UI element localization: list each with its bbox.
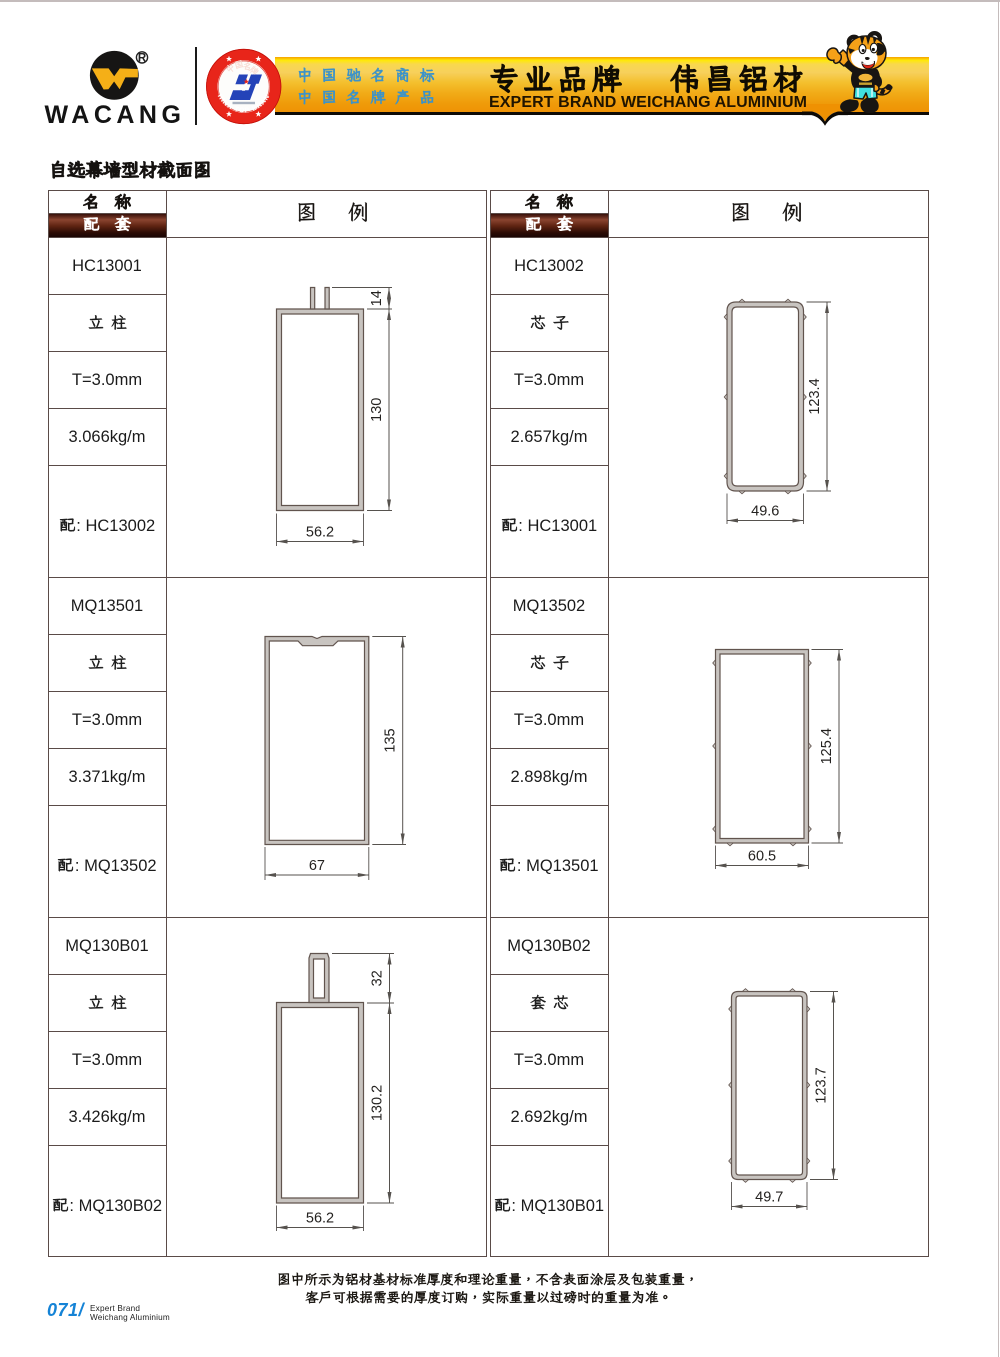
svg-text:67: 67 xyxy=(309,858,325,874)
svg-text:14: 14 xyxy=(369,290,385,306)
svg-text:56.2: 56.2 xyxy=(306,1211,334,1227)
svg-text:135: 135 xyxy=(383,728,399,752)
svg-text:123.7: 123.7 xyxy=(813,1067,829,1103)
svg-text:56.2: 56.2 xyxy=(306,525,334,541)
svg-text:32: 32 xyxy=(370,970,386,986)
svg-text:49.7: 49.7 xyxy=(755,1190,783,1206)
svg-text:R: R xyxy=(138,53,147,65)
svg-text:123.4: 123.4 xyxy=(807,378,823,414)
svg-text:130: 130 xyxy=(369,398,385,422)
svg-text:130.2: 130.2 xyxy=(370,1085,386,1121)
svg-text:60.5: 60.5 xyxy=(747,849,775,865)
svg-text:49.6: 49.6 xyxy=(751,504,779,520)
svg-text:125.4: 125.4 xyxy=(819,728,835,764)
